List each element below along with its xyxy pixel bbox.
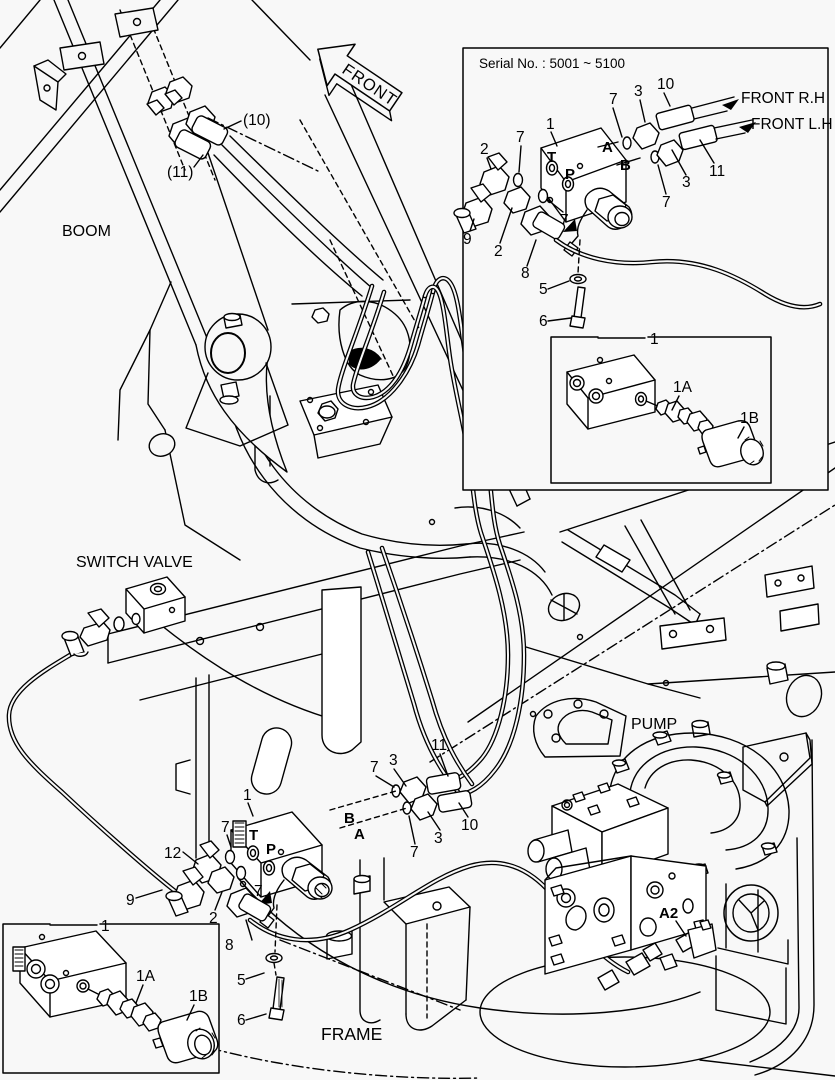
svg-text:BOOM: BOOM <box>62 223 111 240</box>
svg-text:1: 1 <box>101 918 110 935</box>
svg-text:T: T <box>249 827 258 844</box>
svg-text:5: 5 <box>237 972 246 989</box>
svg-text:7: 7 <box>410 844 419 861</box>
svg-text:1A: 1A <box>673 379 693 396</box>
svg-text:2: 2 <box>480 141 489 158</box>
svg-text:3: 3 <box>434 830 443 847</box>
svg-text:B: B <box>344 810 355 827</box>
svg-text:(11): (11) <box>167 164 193 181</box>
svg-text:P: P <box>565 166 575 183</box>
svg-text:6: 6 <box>539 313 548 330</box>
svg-text:11: 11 <box>431 737 447 754</box>
svg-text:FRONT R.H: FRONT R.H <box>741 90 825 107</box>
svg-text:3: 3 <box>634 83 643 100</box>
svg-text:7: 7 <box>221 819 230 836</box>
svg-text:8: 8 <box>521 265 530 282</box>
svg-text:8: 8 <box>225 937 234 954</box>
svg-text:FRONT L.H: FRONT L.H <box>751 116 833 133</box>
svg-text:(10): (10) <box>243 112 271 129</box>
svg-text:P: P <box>266 841 276 858</box>
svg-text:6: 6 <box>237 1012 246 1029</box>
svg-text:3: 3 <box>389 752 398 769</box>
svg-text:7: 7 <box>560 212 569 229</box>
svg-text:11: 11 <box>709 163 725 180</box>
svg-text:2: 2 <box>494 243 503 260</box>
svg-text:10: 10 <box>461 817 479 834</box>
svg-text:9: 9 <box>463 231 472 248</box>
svg-text:1: 1 <box>243 787 252 804</box>
svg-text:T: T <box>547 149 556 166</box>
svg-text:1: 1 <box>650 331 659 348</box>
svg-text:1B: 1B <box>740 410 759 427</box>
svg-text:2: 2 <box>209 910 218 927</box>
svg-text:Serial No. : 5001 ~ 5100: Serial No. : 5001 ~ 5100 <box>479 56 625 71</box>
svg-text:3: 3 <box>682 174 691 191</box>
svg-text:PUMP: PUMP <box>631 716 677 733</box>
svg-text:A: A <box>354 826 365 843</box>
svg-text:7: 7 <box>662 194 671 211</box>
svg-text:1A: 1A <box>136 968 156 985</box>
svg-text:12: 12 <box>164 845 181 862</box>
svg-text:SWITCH VALVE: SWITCH VALVE <box>76 554 193 571</box>
svg-text:7: 7 <box>609 91 618 108</box>
svg-text:7: 7 <box>516 129 525 146</box>
svg-text:10: 10 <box>657 76 675 93</box>
svg-text:A2: A2 <box>659 905 678 922</box>
svg-text:1: 1 <box>546 116 555 133</box>
svg-text:A: A <box>602 139 613 156</box>
svg-text:FRAME: FRAME <box>321 1024 382 1044</box>
svg-text:5: 5 <box>539 281 548 298</box>
svg-text:B: B <box>620 157 631 174</box>
svg-text:1B: 1B <box>189 988 208 1005</box>
svg-text:7: 7 <box>254 883 263 900</box>
svg-text:9: 9 <box>126 892 135 909</box>
svg-text:7: 7 <box>370 759 379 776</box>
